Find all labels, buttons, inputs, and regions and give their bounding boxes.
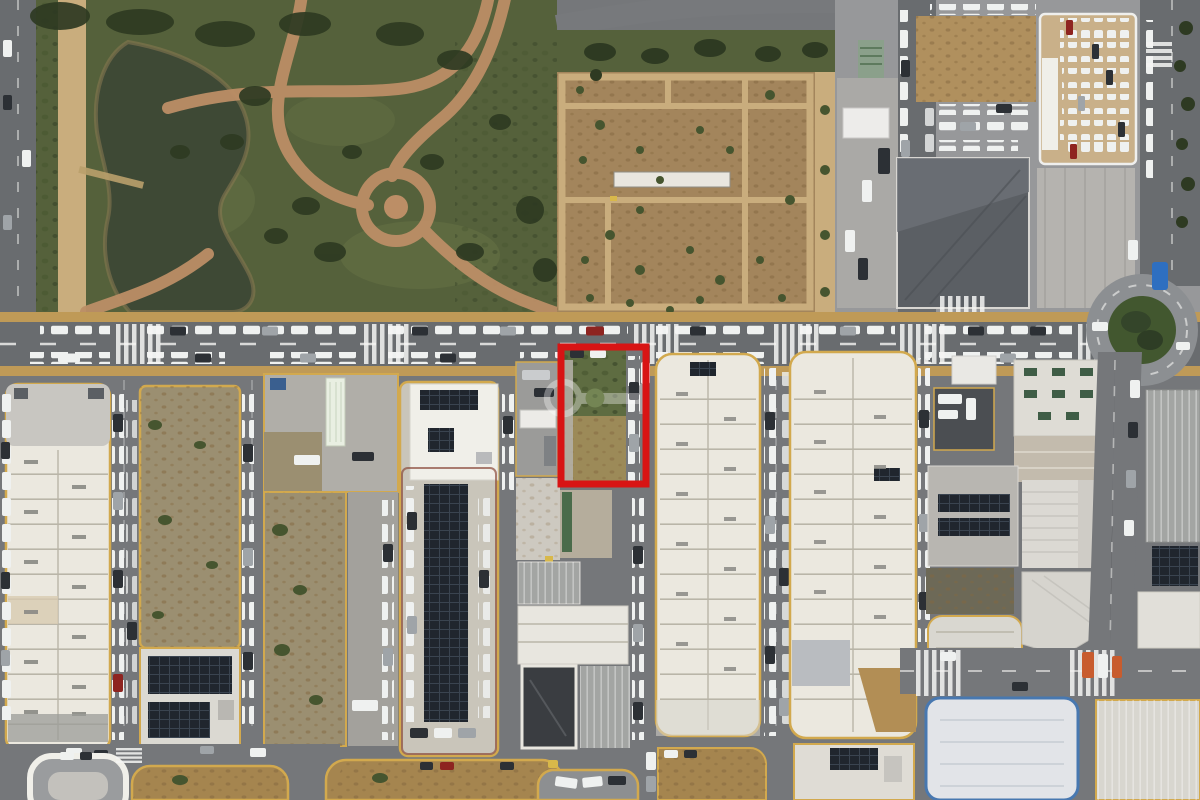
solar-carport-canopy (424, 484, 468, 722)
park-west-road (0, 0, 36, 312)
dirt-lot-block (140, 386, 240, 648)
park (0, 0, 557, 313)
rounded-dirt-lot-bottom-2 (326, 760, 562, 800)
green-roof-kiosk (858, 40, 884, 78)
dirt-field (557, 2, 840, 314)
dark-warehouse (897, 158, 1029, 308)
street-4-parked (502, 390, 514, 490)
roof-solar-patch-2 (874, 468, 900, 481)
roof-solar-patch-3 (1152, 546, 1198, 586)
kerb-parked-row (930, 4, 1036, 15)
rounded-building-bottom-left (30, 752, 126, 800)
rooftop-parking-building (1040, 14, 1136, 164)
kerb-cars-far-west (0, 390, 11, 720)
vacant-plot (562, 348, 650, 486)
white-canopy (843, 108, 889, 138)
dark-roof-building (522, 666, 576, 748)
roadside-tree-strip (36, 0, 58, 312)
solar-roof-building-east (928, 466, 1018, 566)
solar-roof-building-south (794, 744, 914, 800)
warehouse-row-2 (790, 352, 916, 738)
plot-west-wall (564, 360, 573, 482)
roof-solar-patch-1 (690, 362, 716, 376)
ground-parking-rows (938, 104, 1032, 151)
watermark-dot (586, 389, 605, 408)
east-boulevard (1140, 0, 1200, 286)
solar-carport-block (400, 382, 498, 756)
blue-truck (1152, 262, 1168, 290)
blue-panel (270, 378, 286, 390)
street-2-parked (242, 380, 254, 745)
commercial-north-east (835, 0, 1200, 316)
aerial-scene: aerial-drone-photograph (0, 0, 1200, 800)
yard-block (264, 374, 398, 746)
solar-roof-building (140, 648, 240, 746)
south-dirt-lot (646, 748, 766, 800)
rounded-dirt-lot-bottom (132, 766, 288, 800)
plaza-centre (384, 195, 408, 219)
warehouse-row-1 (656, 354, 760, 736)
north-sidewalk (0, 312, 1200, 322)
green-container (562, 492, 572, 552)
digger-vehicle (610, 196, 617, 201)
street-5-parked (632, 494, 644, 740)
warehouse-block-west (6, 384, 110, 750)
park-promenade (58, 0, 86, 312)
field-long-white-structure (614, 172, 730, 187)
aerial-photo: aerial-drone-photograph (0, 0, 1200, 800)
